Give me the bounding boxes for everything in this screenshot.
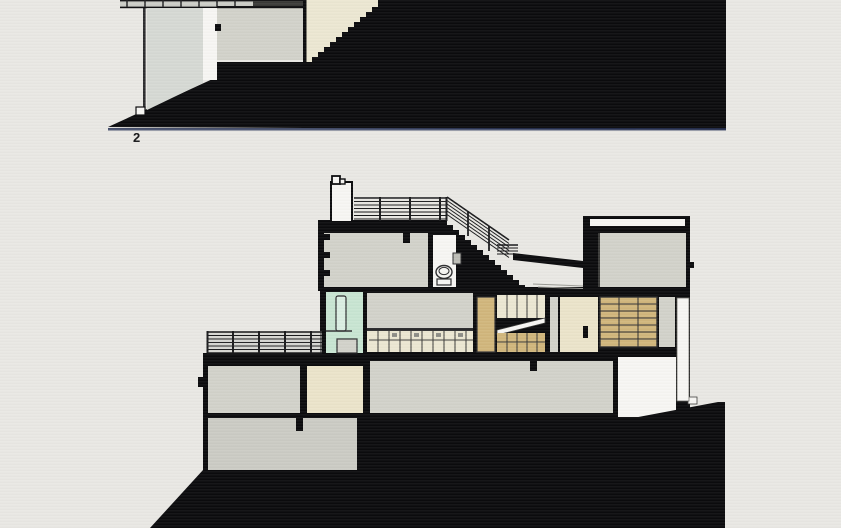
lower-room-1 (208, 366, 300, 413)
lower-floor-rooms (208, 361, 613, 413)
lower-room-3 (370, 361, 613, 413)
right-window-strip (677, 298, 689, 401)
upper-wall-gap (203, 8, 217, 80)
upper-floor-rooms (324, 232, 461, 288)
upper-section-drawing (108, 0, 726, 131)
wall-strip (550, 297, 558, 352)
basement-wall-stub (296, 418, 303, 431)
left-wall-nub (198, 377, 204, 387)
lower-ceiling-stub (530, 361, 537, 371)
right-upper-box (583, 216, 694, 295)
deck-railing (207, 331, 322, 353)
basement-room (208, 418, 357, 470)
upper-bottom-edge-line (108, 128, 726, 131)
connecting-roof-band (513, 253, 583, 268)
upper-room-right-wall (303, 0, 307, 62)
door-leaf (336, 296, 346, 331)
wall-bracket (688, 262, 694, 268)
mid-cream-room (560, 297, 598, 352)
section-drawings-canvas (0, 0, 841, 528)
mullion-foot (136, 107, 145, 115)
upper-room (215, 0, 307, 62)
cream-room-wall-stub (583, 326, 588, 338)
figure-number-label: 2 (133, 130, 141, 145)
roof-terrace-railing (354, 197, 447, 221)
kitchen-cabinets (367, 328, 473, 352)
glass-mullion (143, 8, 146, 111)
wall-tick (215, 24, 221, 31)
basement (208, 418, 357, 470)
ceiling-stub (403, 232, 410, 243)
wood-panel (477, 297, 495, 352)
mint-room-opening (337, 339, 357, 353)
wood-shelf-unit (600, 297, 657, 347)
lower-section-drawing (150, 176, 725, 528)
upper-room-left (324, 233, 428, 287)
toilet-fixture (436, 266, 452, 286)
mid-gray-strip (659, 297, 675, 347)
lower-white-room (618, 357, 676, 417)
roof-white-band (590, 219, 685, 226)
shelf (453, 253, 461, 264)
mid-gray-room (367, 293, 473, 328)
chimney (331, 176, 352, 222)
partition-wall (428, 233, 433, 288)
scanned-drawing-page: 2 (0, 0, 841, 528)
lower-room-2 (307, 366, 363, 413)
right-box-room (600, 233, 686, 288)
